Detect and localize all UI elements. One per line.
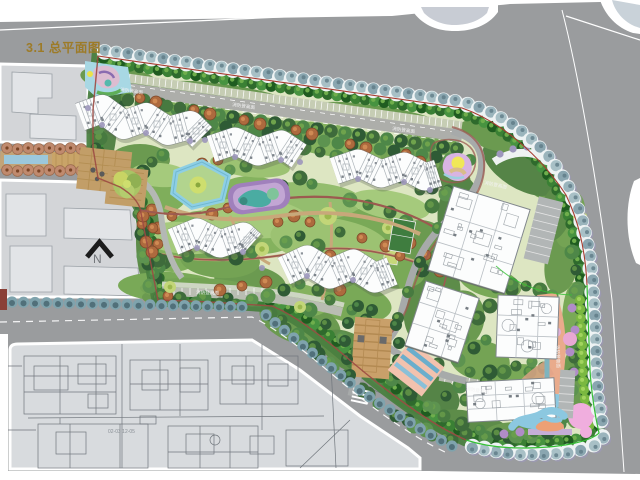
svg-text:02-03 12-05: 02-03 12-05 — [108, 429, 135, 435]
svg-text:3.1 总平面图: 3.1 总平面图 — [26, 40, 101, 55]
svg-text:N: N — [93, 252, 102, 266]
